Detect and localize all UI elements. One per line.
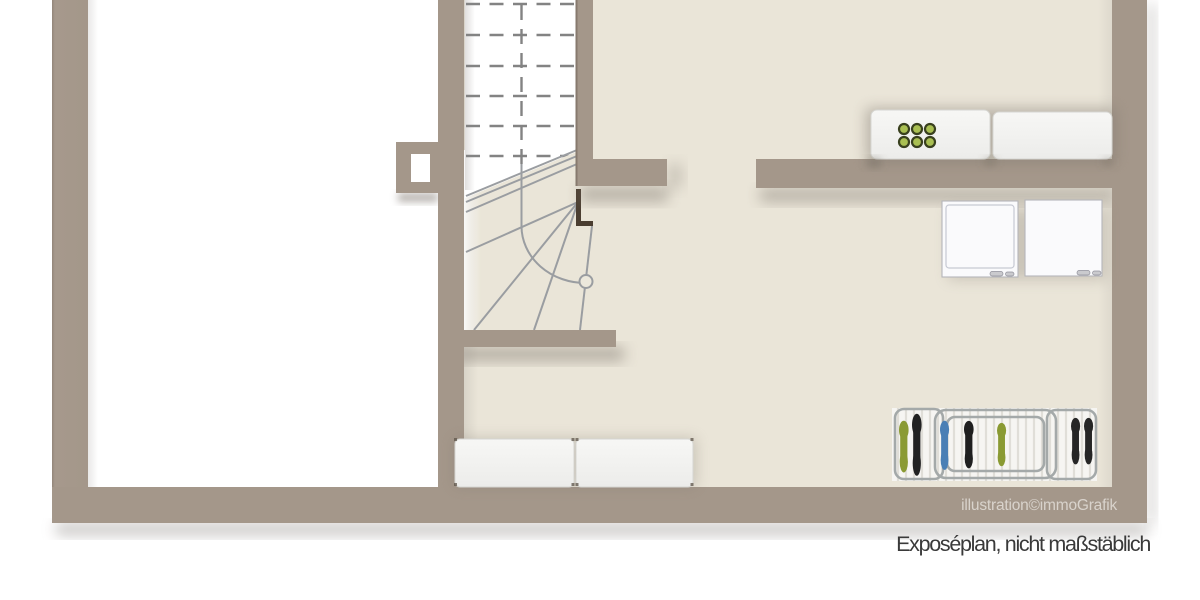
svg-text:Exposéplan, nicht maßstäblich: Exposéplan, nicht maßstäblich xyxy=(896,532,1150,556)
svg-text:illustration©immoGrafik: illustration©immoGrafik xyxy=(961,497,1117,514)
